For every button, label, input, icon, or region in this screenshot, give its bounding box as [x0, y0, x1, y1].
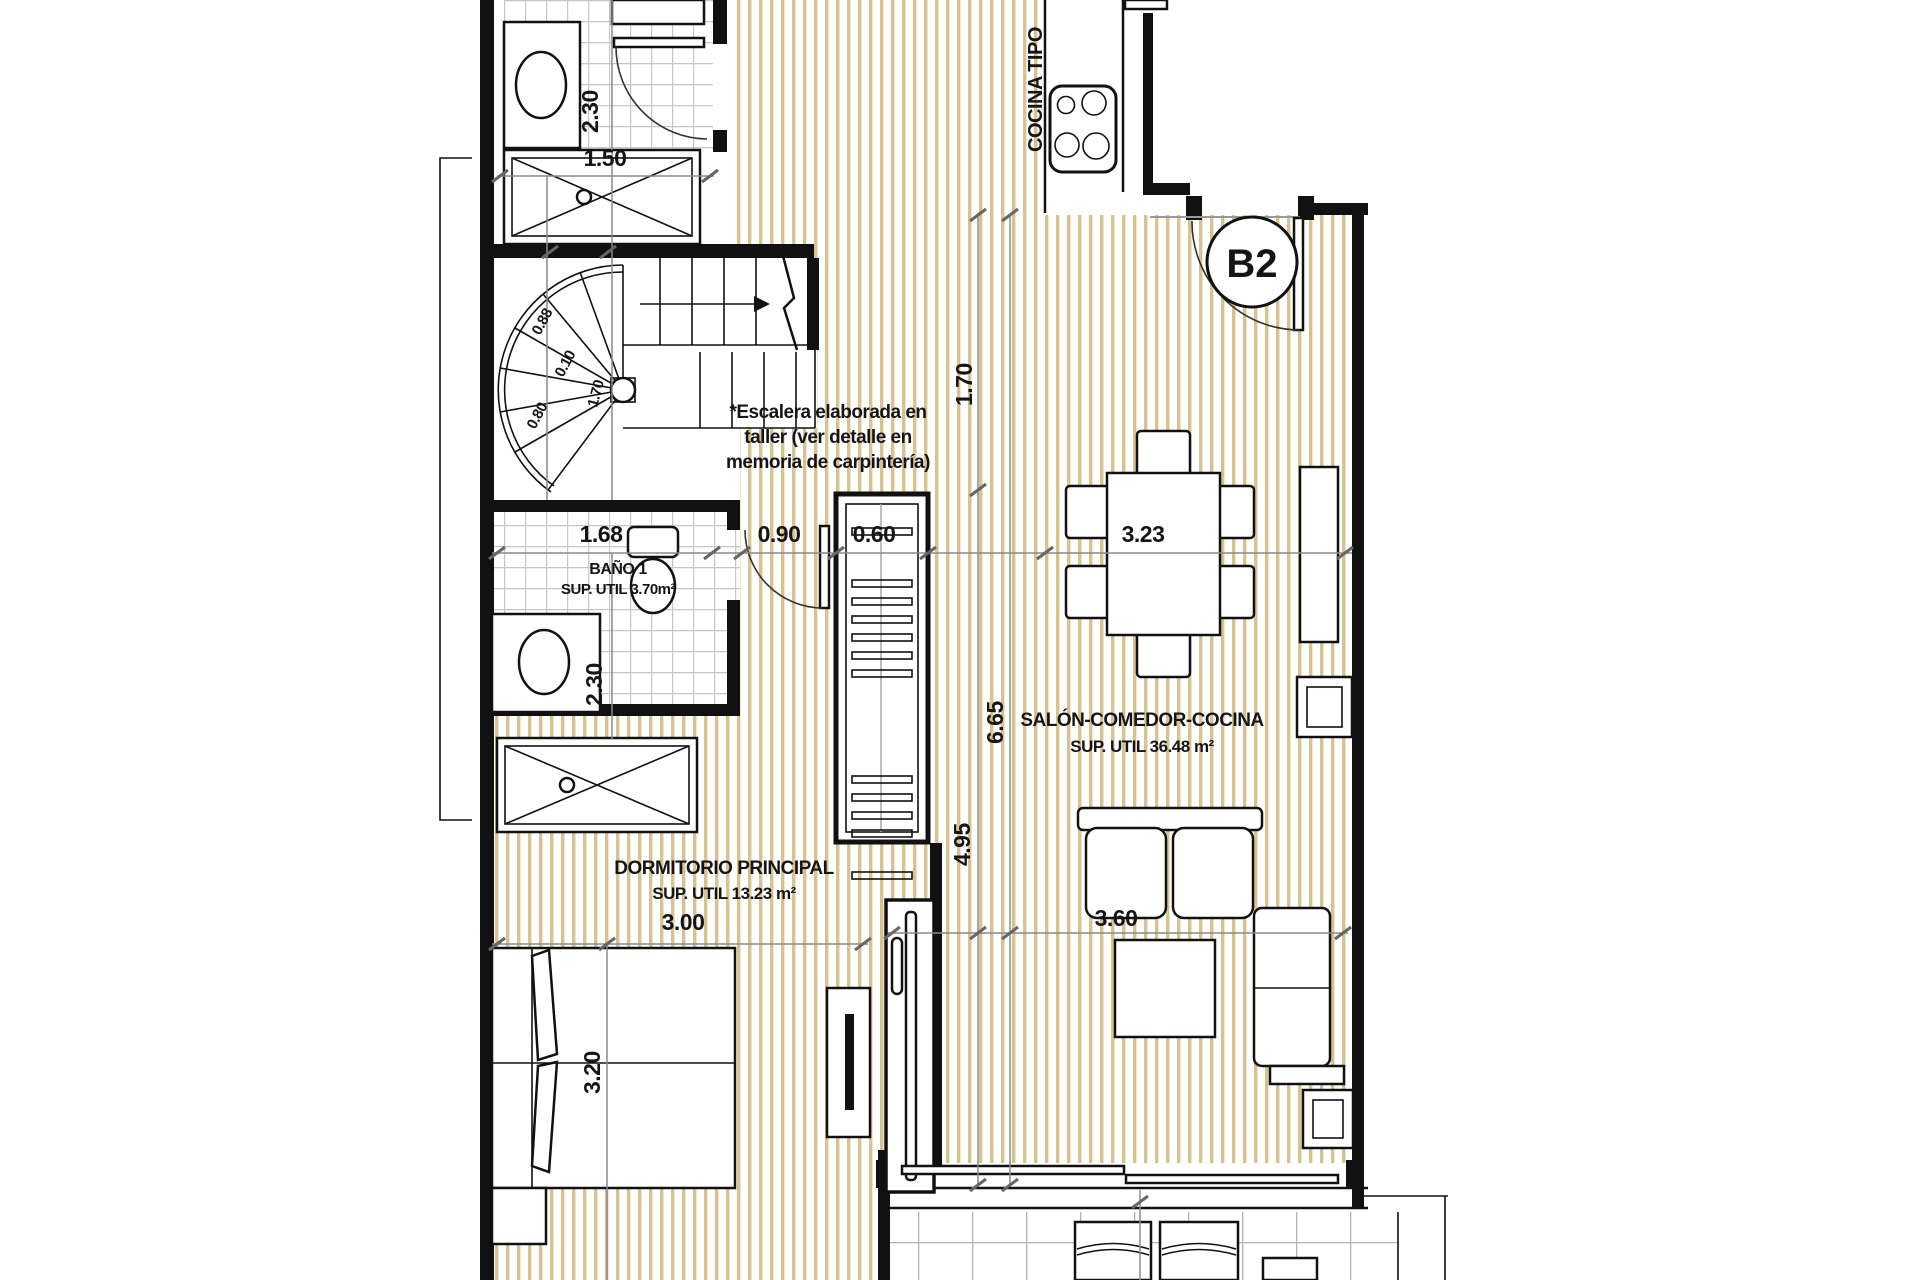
washbasin [516, 52, 566, 118]
dim-kitchen-length: 1.70 [951, 363, 977, 406]
room-label-salon: SALÓN-COMEDOR-COCINA [1020, 709, 1264, 731]
dim-hall-length: 4.95 [949, 823, 975, 866]
dim-bano1-height: 2.30 [581, 663, 607, 706]
stair-newel [611, 378, 635, 402]
sliding-door-leaf [906, 912, 916, 1180]
dining-chair [1066, 566, 1110, 618]
dining-chair [1066, 486, 1110, 538]
plot-boundary-line [440, 158, 472, 820]
coffee-table [1115, 940, 1215, 1037]
nightstand [492, 1188, 546, 1244]
dim-bath-top-height: 2.30 [577, 90, 603, 133]
shower-drain [577, 190, 591, 204]
dim-bedroom-width: 3.00 [662, 909, 705, 935]
shower-drain-2 [560, 778, 574, 792]
stair-note-line3: memoria de carpintería) [726, 452, 930, 473]
room-area-dormitorio: SUP. UTIL 13.23 m² [652, 884, 796, 903]
dim-bedroom-length: 3.20 [579, 1051, 605, 1094]
double-bed [492, 948, 735, 1188]
dim-closet-depth: 0.60 [853, 521, 896, 547]
dining-chair [1137, 631, 1190, 677]
room-label-bano1: BAÑO 1 [589, 558, 647, 578]
side-table-2 [1303, 1090, 1353, 1148]
room-label-cocina: COCINA TIPO [1025, 27, 1047, 152]
hall-closet [836, 494, 928, 879]
room-area-bano1: SUP. UTIL 3.70m² [561, 581, 675, 598]
sideboard [1300, 467, 1338, 642]
floor-plan: B2 [0, 0, 1920, 1280]
door-handle [892, 938, 902, 994]
floor-plan-sheet: B2 [0, 0, 1920, 1280]
dim-bath-top-width: 1.50 [584, 145, 627, 171]
wood-floor-bedroom-2 [735, 1163, 878, 1280]
unit-label: B2 [1226, 242, 1277, 286]
terrace-table [1263, 1258, 1317, 1280]
door-leaf-bano1 [820, 526, 829, 608]
sofa-seat [1173, 828, 1253, 918]
armchair-cushion [1270, 1066, 1344, 1084]
door-leaf [614, 38, 704, 47]
cut-fixture [612, 0, 704, 24]
sliding-glass-door-leaf [902, 1166, 1124, 1174]
dim-hall-width: 0.90 [758, 521, 801, 547]
stair-note-line2: taller (ver detalle en [744, 427, 911, 448]
sliding-glass-door-leaf [1126, 1175, 1338, 1183]
dim-living-width: 3.60 [1095, 905, 1138, 931]
stair-note-line1: *Escalera elaborada en [729, 402, 926, 423]
armchair [1254, 908, 1330, 1066]
dim-bano1-width: 1.68 [580, 521, 623, 547]
room-label-dormitorio: DORMITORIO PRINCIPAL [614, 858, 834, 879]
washbasin-2 [519, 630, 569, 694]
room-area-salon: SUP. UTIL 36.48 m² [1070, 737, 1214, 756]
dim-dining-width: 3.23 [1122, 521, 1165, 547]
sun-lounger [1160, 1222, 1238, 1280]
sofa-back [1078, 808, 1262, 830]
side-table [1297, 677, 1352, 737]
dining-chair [1137, 431, 1190, 477]
dim-salon-length: 6.65 [982, 701, 1008, 744]
dining-table [1107, 473, 1220, 635]
tv-screen [845, 1014, 854, 1110]
counter-cut [1125, 0, 1167, 9]
